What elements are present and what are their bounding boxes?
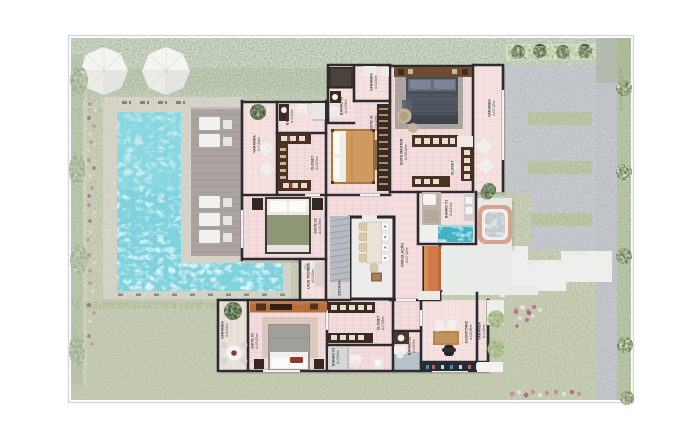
svg-text:A=6,40m²: A=6,40m² xyxy=(225,323,229,337)
svg-text:A=3,40m²: A=3,40m² xyxy=(311,269,315,283)
svg-text:CLOSET: CLOSET xyxy=(451,160,455,175)
svg-text:ESCRITÓRIO: ESCRITÓRIO xyxy=(464,321,469,344)
svg-text:A=7,83m²: A=7,83m² xyxy=(381,316,385,330)
svg-text:CLOSET: CLOSET xyxy=(377,315,381,330)
svg-text:projetoarquitetura.com: projetoarquitetura.com xyxy=(619,67,623,110)
svg-text:LAVE TÉCNICA: LAVE TÉCNICA xyxy=(306,262,311,289)
svg-text:VARANDA: VARANDA xyxy=(370,73,374,91)
svg-text:A=17,40m²: A=17,40m² xyxy=(405,247,409,263)
svg-text:SUITE 03: SUITE 03 xyxy=(251,333,255,349)
svg-text:BANHO 01: BANHO 01 xyxy=(445,200,449,218)
svg-text:SUITE 01: SUITE 01 xyxy=(370,115,374,131)
svg-text:A=30,16m²: A=30,16m² xyxy=(404,144,408,160)
svg-text:CLOSET: CLOSET xyxy=(311,155,315,170)
svg-text:A=6,12m²: A=6,12m² xyxy=(449,202,453,216)
svg-text:A=3,55m²: A=3,55m² xyxy=(344,99,348,113)
svg-text:A=14,15m²: A=14,15m² xyxy=(374,115,378,131)
svg-text:BANHO 03: BANHO 03 xyxy=(332,348,336,366)
svg-text:SUITE 02: SUITE 02 xyxy=(314,218,318,234)
svg-text:BANHO 05: BANHO 05 xyxy=(286,107,290,125)
svg-text:BANHO 02: BANHO 02 xyxy=(408,337,412,355)
svg-text:A=3,10m²: A=3,10m² xyxy=(336,350,340,364)
svg-text:CIRCULAÇÃO: CIRCULAÇÃO xyxy=(400,243,405,267)
svg-text:A=7,52m²: A=7,52m² xyxy=(257,137,261,151)
svg-text:ESCADA: ESCADA xyxy=(338,280,342,296)
svg-text:A=4,07m²: A=4,07m² xyxy=(315,156,319,170)
svg-text:A=4,00m²: A=4,00m² xyxy=(374,75,378,89)
svg-text:BANHO 04: BANHO 04 xyxy=(340,97,344,115)
svg-text:VARANDA: VARANDA xyxy=(221,321,225,339)
svg-text:A=2,87m²: A=2,87m² xyxy=(412,339,416,353)
svg-text:VARANDA: VARANDA xyxy=(488,99,492,117)
svg-text:A=17,25m²: A=17,25m² xyxy=(492,100,496,116)
svg-text:A=13,78m²: A=13,78m² xyxy=(318,218,322,234)
svg-text:A=3,40m²: A=3,40m² xyxy=(290,109,294,123)
svg-text:VARANDA: VARANDA xyxy=(478,322,482,340)
svg-text:A=4,15m²: A=4,15m² xyxy=(482,324,486,338)
svg-text:A=23,25m²: A=23,25m² xyxy=(255,333,259,349)
svg-text:SUITE MASTER: SUITE MASTER xyxy=(400,138,404,165)
svg-text:A=10,56m²: A=10,56m² xyxy=(469,324,473,340)
svg-text:VARANDA: VARANDA xyxy=(253,135,257,153)
